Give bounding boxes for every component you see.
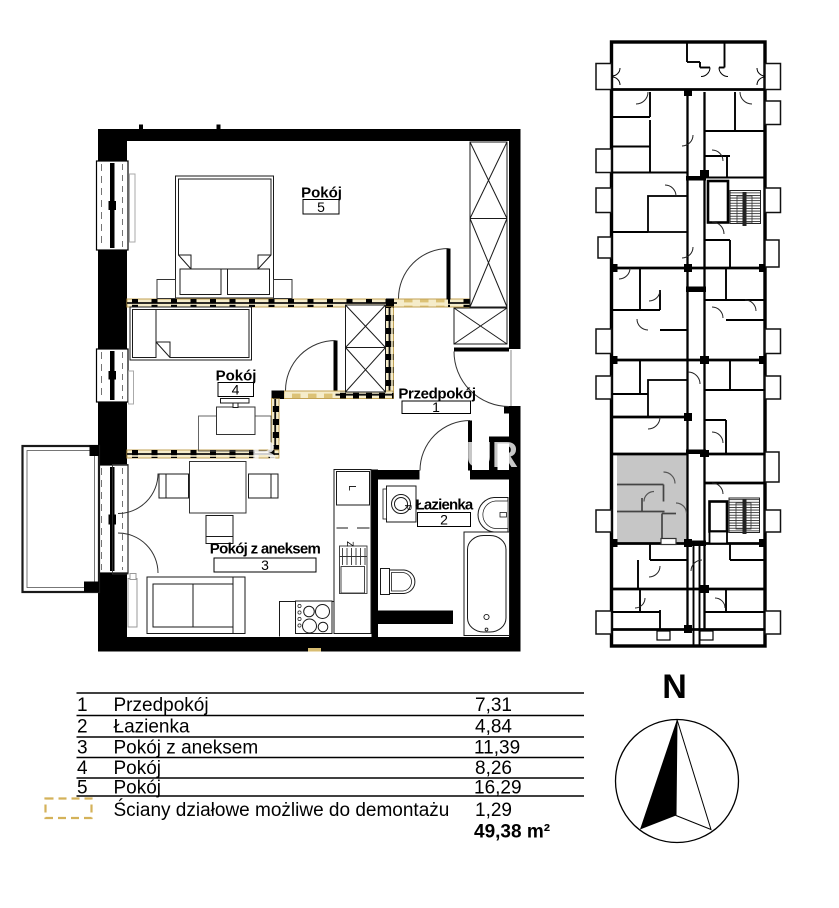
svg-text:Ściany działowe możliwe do dem: Ściany działowe możliwe do demontażu	[114, 799, 450, 821]
svg-text:2: 2	[77, 717, 88, 738]
svg-text:P: P	[403, 504, 413, 510]
svg-text:1: 1	[77, 695, 88, 716]
svg-text:Pokój z aneksem: Pokój z aneksem	[210, 541, 321, 558]
svg-text:L: L	[346, 485, 357, 491]
svg-text:3: 3	[77, 738, 88, 759]
svg-text:BI: BI	[251, 433, 287, 474]
svg-text:N: N	[662, 668, 687, 706]
svg-text:Łazienka: Łazienka	[114, 717, 190, 738]
svg-text:8,26: 8,26	[475, 758, 512, 779]
svg-text:Pokój z aneksem: Pokój z aneksem	[114, 738, 259, 759]
svg-text:7,31: 7,31	[475, 695, 512, 716]
svg-text:Pokój: Pokój	[114, 758, 162, 779]
svg-text:16,29: 16,29	[474, 778, 522, 799]
svg-text:11,39: 11,39	[474, 738, 520, 759]
svg-text:Pokój: Pokój	[114, 778, 162, 799]
svg-text:49,38 m²: 49,38 m²	[474, 822, 550, 843]
svg-text:UR: UR	[466, 434, 518, 475]
svg-text:Przedpokój: Przedpokój	[114, 695, 209, 716]
svg-text:4: 4	[232, 381, 240, 397]
svg-text:Z: Z	[345, 541, 355, 547]
svg-text:4: 4	[77, 758, 88, 779]
svg-text:2: 2	[440, 512, 448, 528]
svg-text:5: 5	[317, 199, 325, 215]
svg-text:1: 1	[432, 399, 440, 415]
svg-text:1,29: 1,29	[475, 800, 512, 821]
svg-text:3: 3	[261, 557, 269, 573]
svg-text:4,84: 4,84	[475, 717, 512, 738]
svg-text:5: 5	[77, 778, 88, 799]
